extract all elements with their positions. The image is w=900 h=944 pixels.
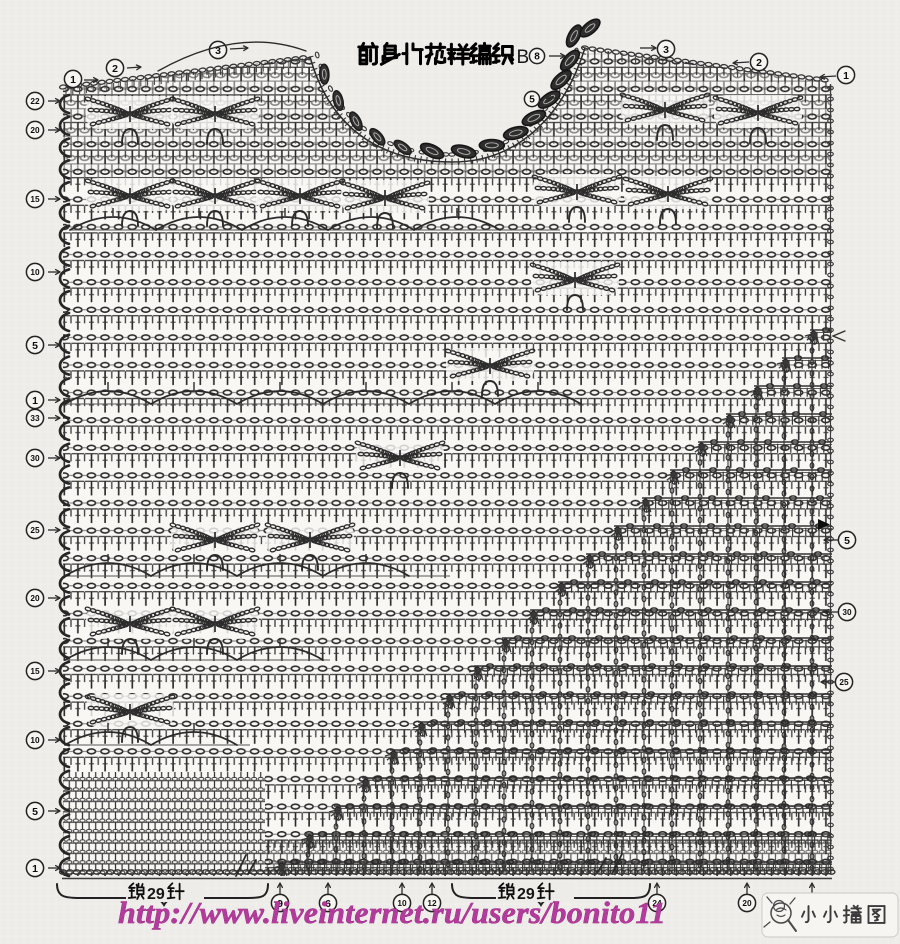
svg-text:B: B xyxy=(517,47,530,68)
svg-text:20: 20 xyxy=(30,593,40,603)
svg-text:10: 10 xyxy=(30,267,40,277)
svg-text:20: 20 xyxy=(30,125,40,135)
svg-text:1: 1 xyxy=(843,70,849,82)
svg-text:20: 20 xyxy=(742,898,752,908)
svg-text:30: 30 xyxy=(30,453,40,463)
svg-text:5: 5 xyxy=(32,806,38,818)
svg-text:30: 30 xyxy=(842,607,852,617)
svg-text:5: 5 xyxy=(529,95,535,106)
svg-text:22: 22 xyxy=(30,96,40,106)
svg-text:5: 5 xyxy=(32,340,38,352)
svg-text:1: 1 xyxy=(70,74,76,86)
svg-text:15: 15 xyxy=(30,666,40,676)
svg-text:1: 1 xyxy=(32,863,38,875)
svg-text:25: 25 xyxy=(839,677,849,687)
svg-text:8: 8 xyxy=(534,52,540,63)
svg-text:3: 3 xyxy=(663,44,669,56)
svg-text:1: 1 xyxy=(32,395,38,407)
svg-text:5: 5 xyxy=(844,535,850,547)
svg-text:33: 33 xyxy=(30,413,40,423)
svg-text:15: 15 xyxy=(30,194,40,204)
svg-text:http://www.liveinternet.ru/use: http://www.liveinternet.ru/users/bonito1… xyxy=(118,896,666,930)
svg-text:25: 25 xyxy=(30,525,40,535)
svg-text:10: 10 xyxy=(30,735,40,745)
svg-text:2: 2 xyxy=(112,63,118,75)
svg-text:2: 2 xyxy=(756,57,762,69)
